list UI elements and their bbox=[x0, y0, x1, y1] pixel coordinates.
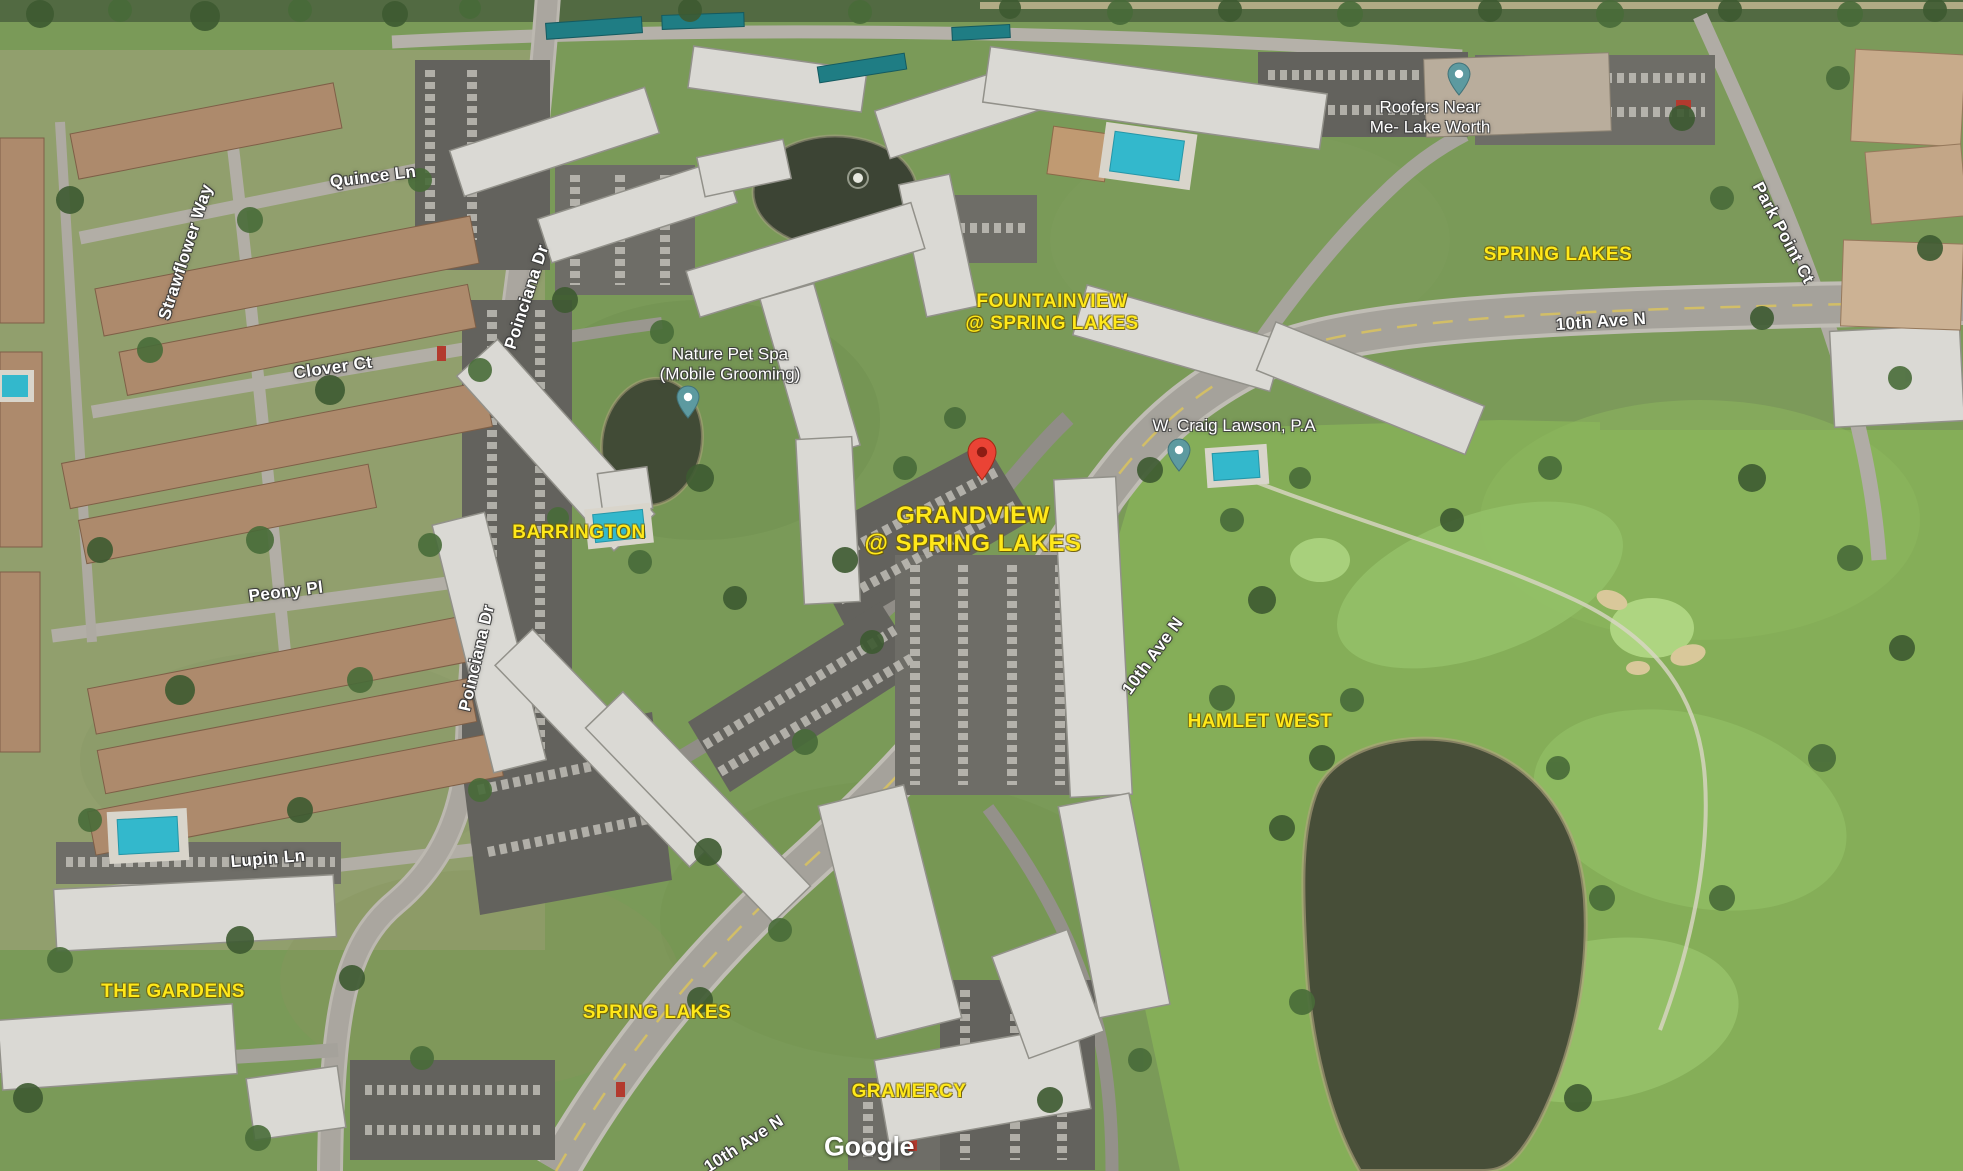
pool bbox=[593, 509, 646, 542]
satellite-map[interactable]: Quince Ln Strawflower Way Clover Ct Poin… bbox=[0, 0, 1963, 1171]
pond-fountain bbox=[853, 173, 863, 183]
sand-bunker bbox=[1626, 661, 1650, 675]
poi-pin-nature-pet-spa[interactable] bbox=[676, 385, 700, 424]
teal-pin-icon bbox=[1447, 62, 1471, 96]
satellite-imagery[interactable] bbox=[0, 0, 1963, 1171]
golf-lake bbox=[1303, 739, 1585, 1171]
teal-pin-icon bbox=[676, 385, 700, 419]
poi-pin-roofers-near-me[interactable] bbox=[1447, 62, 1471, 101]
destination-pin-grandview[interactable] bbox=[967, 437, 997, 486]
pool bbox=[2, 375, 28, 397]
poi-pin-w-craig-lawson[interactable] bbox=[1167, 438, 1191, 477]
red-pin-icon bbox=[967, 437, 997, 481]
pool bbox=[1212, 450, 1260, 480]
pool bbox=[117, 816, 179, 854]
teal-pin-icon bbox=[1167, 438, 1191, 472]
